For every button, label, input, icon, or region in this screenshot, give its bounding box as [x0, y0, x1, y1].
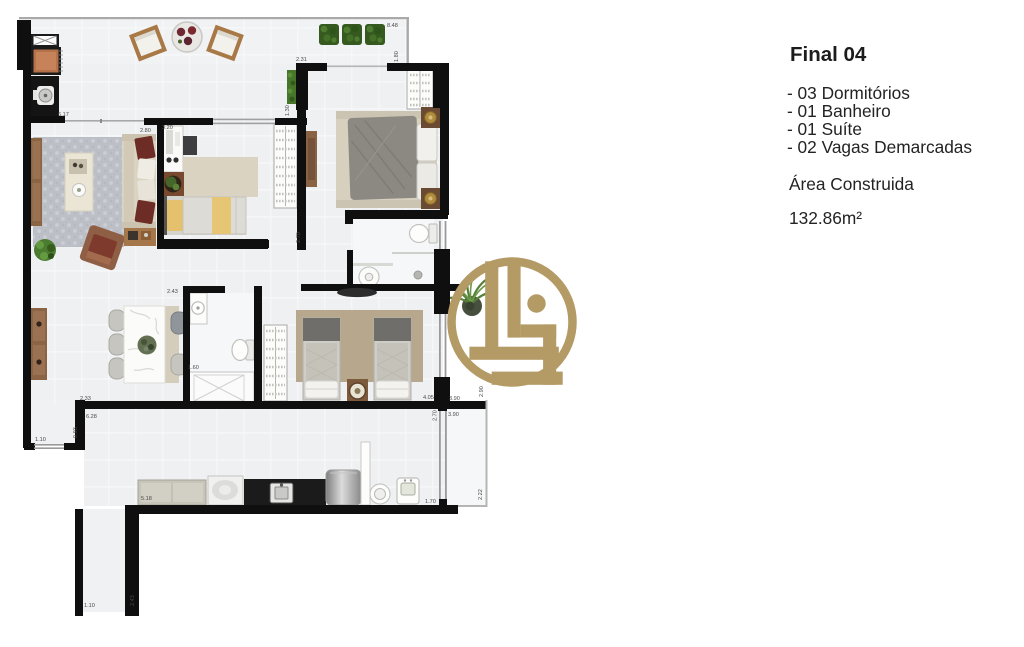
- svg-text:6.28: 6.28: [86, 414, 97, 420]
- svg-text:3.90: 3.90: [449, 396, 460, 402]
- svg-text:5.18: 5.18: [141, 496, 152, 502]
- svg-text:2.43: 2.43: [130, 595, 136, 606]
- svg-text:- 02 Vagas Demarcadas: - 02 Vagas Demarcadas: [787, 137, 972, 157]
- svg-text:6.17: 6.17: [58, 112, 69, 118]
- svg-text:2.90: 2.90: [479, 386, 485, 397]
- svg-text:- 03 Dormitórios: - 03 Dormitórios: [787, 83, 910, 103]
- svg-text:- 01 Banheiro: - 01 Banheiro: [787, 101, 891, 121]
- svg-text:0.93: 0.93: [73, 427, 79, 438]
- svg-text:1.10: 1.10: [84, 603, 95, 609]
- svg-text:2.22: 2.22: [478, 489, 484, 500]
- svg-text:Área Construida: Área Construida: [789, 174, 914, 194]
- svg-text:1.30: 1.30: [285, 105, 291, 116]
- svg-text:1.70: 1.70: [425, 499, 436, 505]
- svg-text:2.43: 2.43: [167, 289, 178, 295]
- svg-text:1.80: 1.80: [394, 51, 400, 62]
- svg-text:- 01 Suíte: - 01 Suíte: [787, 119, 862, 139]
- svg-text:132.86m²: 132.86m²: [789, 208, 862, 228]
- svg-text:3.20: 3.20: [162, 125, 173, 131]
- svg-text:2.33: 2.33: [80, 396, 91, 402]
- svg-text:2.70: 2.70: [433, 410, 439, 421]
- svg-text:3.90: 3.90: [448, 412, 459, 418]
- svg-text:8.48: 8.48: [387, 23, 398, 29]
- svg-text:1.10: 1.10: [35, 437, 46, 443]
- svg-text:Final 04: Final 04: [790, 43, 867, 66]
- svg-text:4.05: 4.05: [423, 395, 434, 401]
- svg-text:1.60: 1.60: [188, 365, 199, 371]
- svg-text:2.31: 2.31: [296, 57, 307, 63]
- svg-text:2.70: 2.70: [296, 232, 302, 243]
- svg-text:2.80: 2.80: [140, 128, 151, 134]
